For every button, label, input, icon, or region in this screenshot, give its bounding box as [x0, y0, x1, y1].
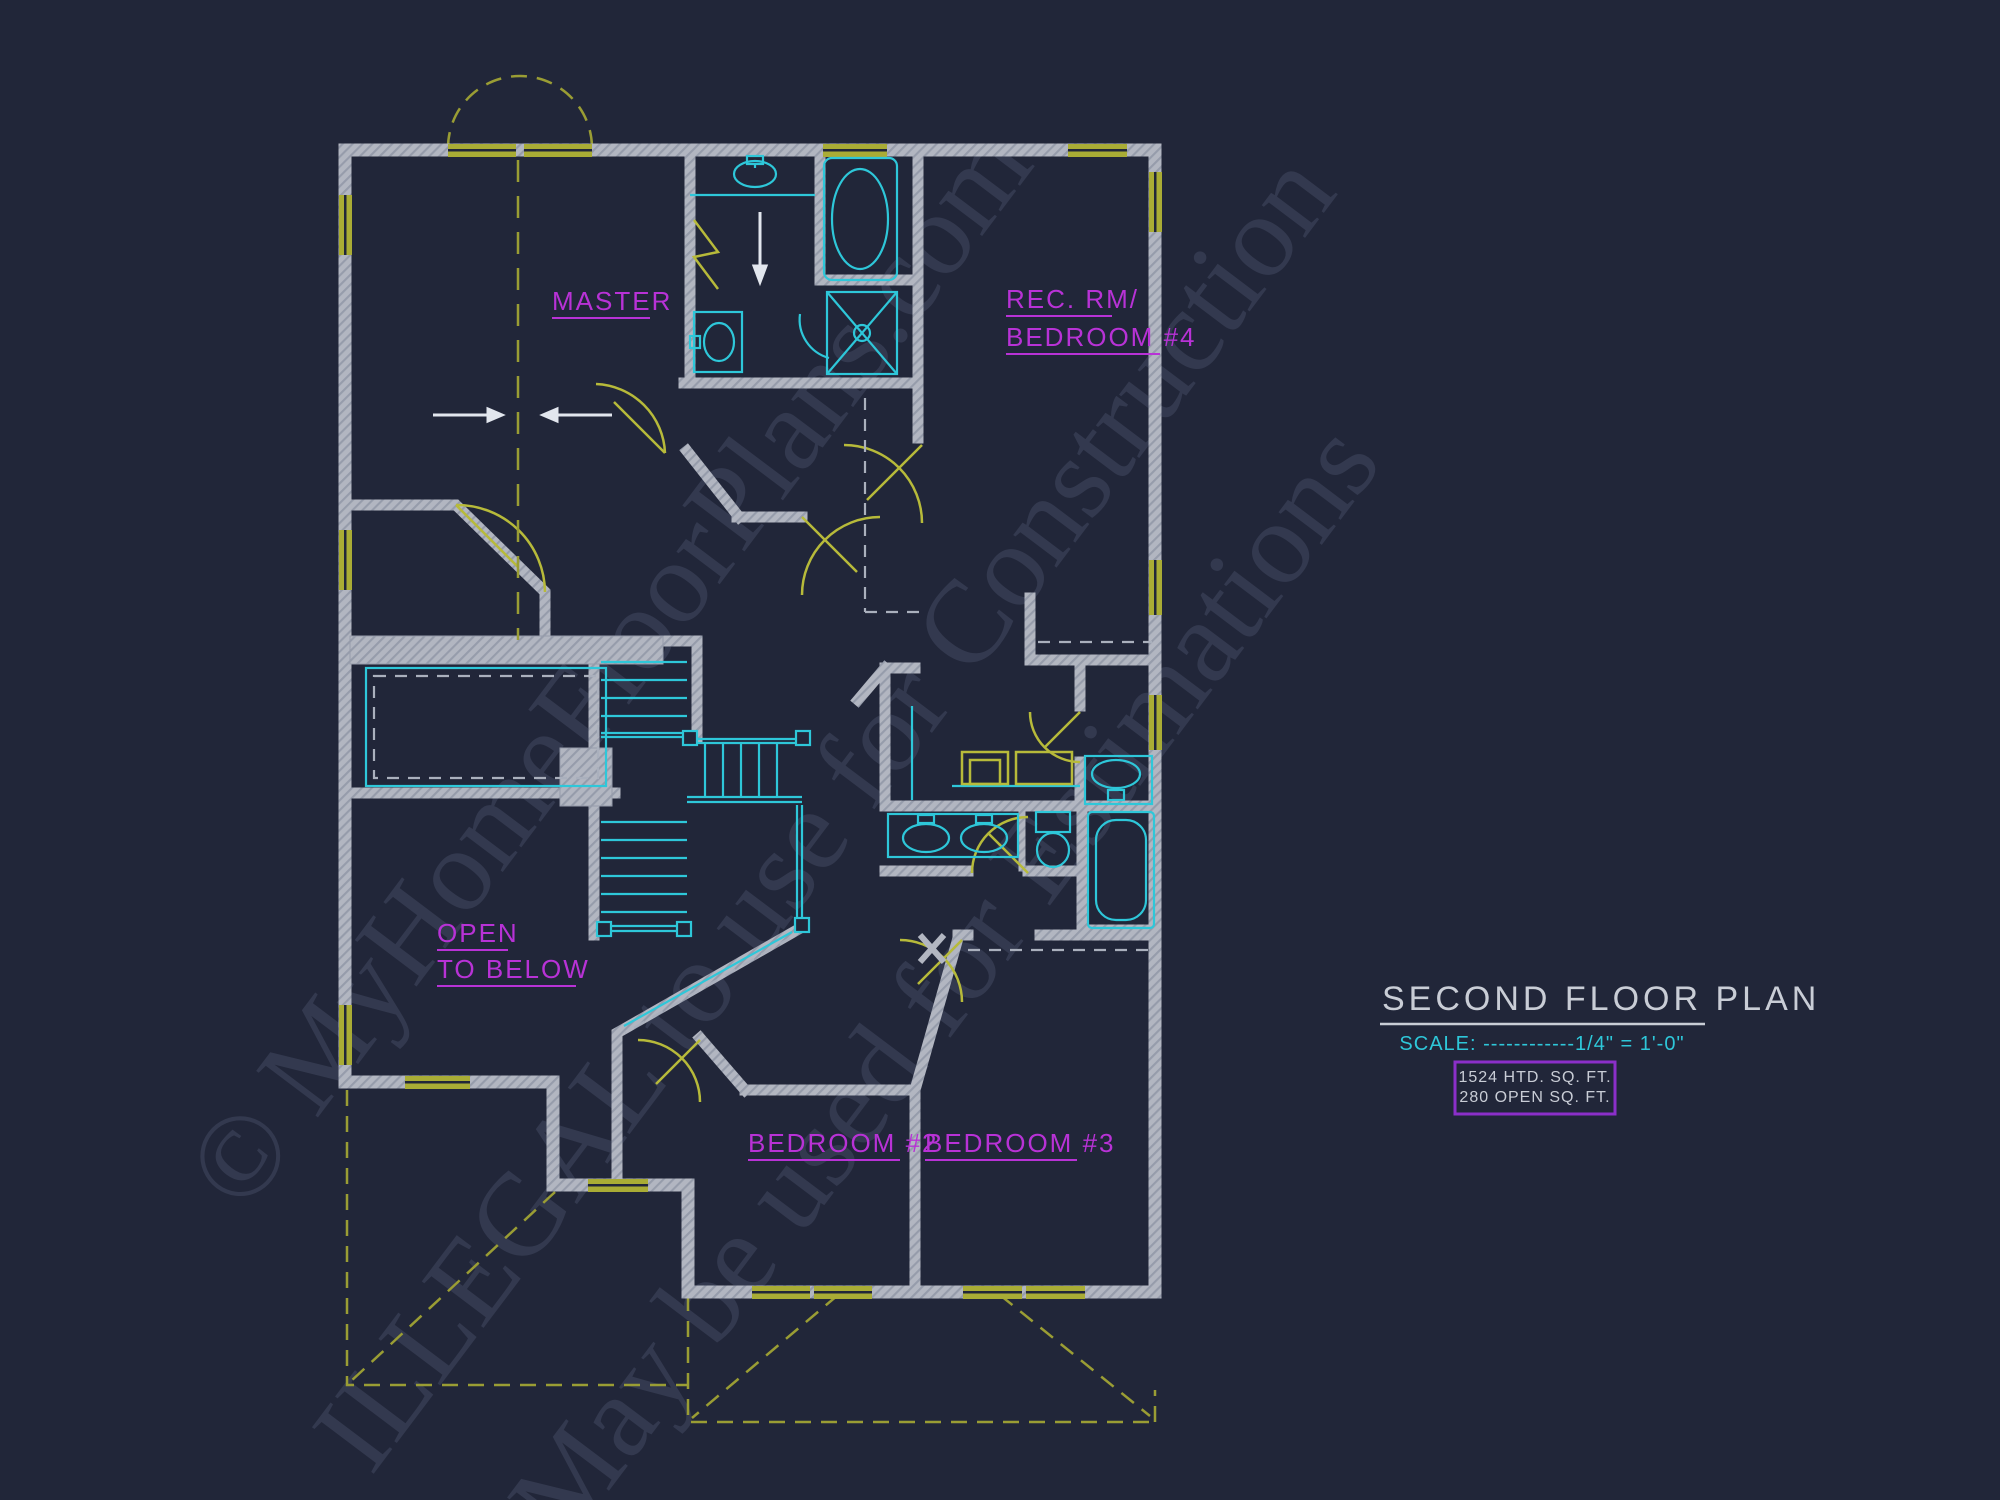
- area-open: 280 OPEN SQ. FT.: [1459, 1089, 1610, 1106]
- window-left-1: [339, 195, 352, 255]
- window-top-arch-left: [448, 144, 516, 157]
- room-label-open-1: OPEN: [437, 918, 519, 948]
- window-bed3-b: [1026, 1286, 1085, 1299]
- window-bed3-a: [963, 1286, 1022, 1299]
- window-bath-top: [823, 144, 887, 157]
- recrm-dashed-closet: [865, 398, 920, 612]
- master-vanity2-sink-icon: [690, 312, 742, 372]
- recrm-door-swing-right: [844, 445, 922, 523]
- plan-title: SECOND FLOOR PLAN: [1382, 980, 1820, 1018]
- window-step-2: [588, 1179, 648, 1192]
- laundry-hatched-band: [350, 636, 663, 664]
- window-right-1: [1149, 172, 1162, 232]
- window-right-2: [1149, 560, 1162, 615]
- master-vanity-sink-icon: [690, 156, 815, 195]
- floor-plan-page: © MyHomeFloorPlans.com ILLEGAL to use fo…: [0, 0, 2000, 1500]
- room-label-bedroom2: BEDROOM #2: [748, 1128, 939, 1158]
- room-label-bedroom3: BEDROOM #3: [925, 1128, 1116, 1158]
- room-label-recrm-2: BEDROOM #4: [1006, 322, 1197, 352]
- plan-scale: SCALE: ------------1/4" = 1'-0": [1399, 1033, 1684, 1055]
- room-label-recrm-1: REC. RM/: [1006, 284, 1139, 314]
- master-hall-door-swing: [596, 384, 665, 453]
- window-step-1: [405, 1076, 470, 1089]
- window-bed2-b: [814, 1286, 872, 1299]
- ceiling-arrows: [433, 212, 766, 421]
- title-block: SECOND FLOOR PLAN SCALE: ------------1/4…: [1380, 980, 1820, 1114]
- floor-plan-canvas: © MyHomeFloorPlans.com ILLEGAL to use fo…: [0, 0, 2000, 1500]
- window-right-3: [1149, 695, 1162, 750]
- window-top-arch-right: [524, 144, 592, 157]
- window-left-3: [339, 1005, 352, 1065]
- recrm-door-swing-left: [802, 517, 880, 595]
- window-recrm-top: [1068, 144, 1127, 157]
- windows: [339, 144, 1162, 1299]
- master-closet-bifold: [694, 220, 718, 289]
- room-label-open-2: TO BELOW: [437, 954, 590, 984]
- window-left-2: [339, 530, 352, 590]
- room-label-master: MASTER: [552, 286, 672, 316]
- area-heated: 1524 HTD. SQ. FT.: [1458, 1069, 1611, 1086]
- window-bed2-a: [752, 1286, 810, 1299]
